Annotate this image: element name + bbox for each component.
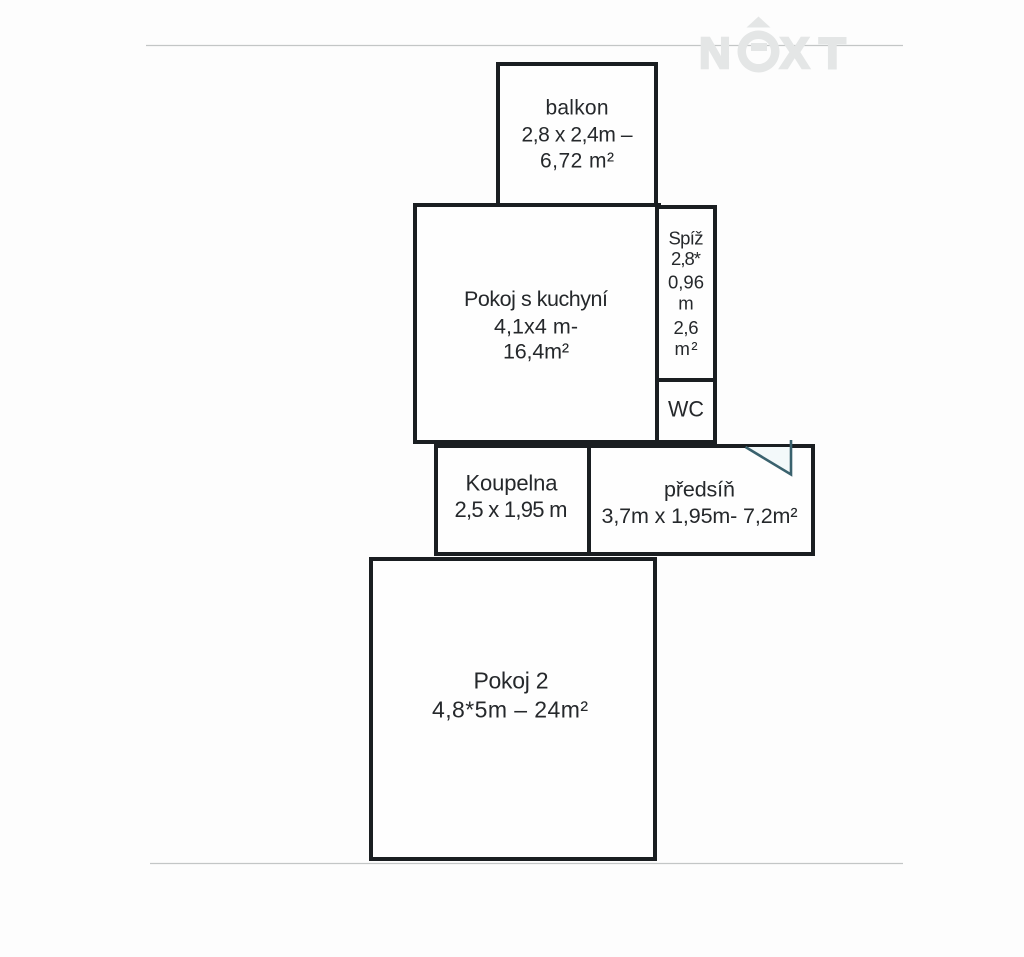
svg-text:0,96: 0,96 bbox=[668, 271, 704, 292]
svg-text:XT: XT bbox=[780, 29, 855, 78]
svg-text:N: N bbox=[699, 29, 731, 78]
svg-text:m: m bbox=[678, 293, 693, 314]
svg-text:m²: m² bbox=[675, 338, 698, 359]
svg-text:Spíž: Spíž bbox=[669, 227, 704, 248]
svg-text:Pokoj 2: Pokoj 2 bbox=[474, 668, 549, 694]
svg-text:2,8*: 2,8* bbox=[671, 248, 701, 269]
svg-text:16,4m²: 16,4m² bbox=[503, 340, 569, 364]
svg-text:WC: WC bbox=[668, 397, 704, 422]
svg-text:balkon: balkon bbox=[546, 97, 609, 120]
svg-text:6,72 m²: 6,72 m² bbox=[540, 149, 614, 172]
svg-text:4,8*5m – 24m²: 4,8*5m – 24m² bbox=[432, 696, 588, 722]
svg-text:4,1x4 m-: 4,1x4 m- bbox=[494, 314, 578, 338]
svg-text:Pokoj s kuchyní: Pokoj s kuchyní bbox=[464, 287, 608, 311]
svg-text:2,6: 2,6 bbox=[674, 317, 699, 338]
svg-text:Koupelna: Koupelna bbox=[466, 470, 559, 495]
svg-text:3,7m x 1,95m- 7,2m²: 3,7m x 1,95m- 7,2m² bbox=[602, 504, 798, 528]
svg-text:předsíň: předsíň bbox=[664, 478, 735, 502]
svg-text:2,5 x 1,95 m: 2,5 x 1,95 m bbox=[455, 497, 568, 522]
svg-text:2,8 x 2,4m –: 2,8 x 2,4m – bbox=[522, 124, 633, 147]
